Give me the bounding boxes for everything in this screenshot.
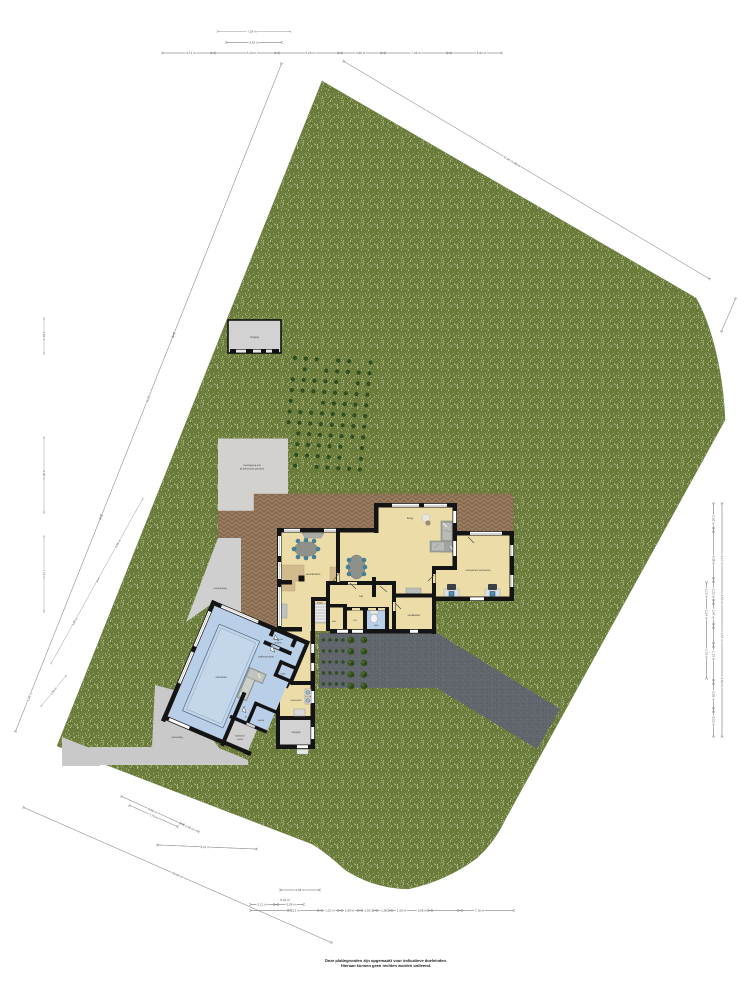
svg-text:berging: berging: [292, 731, 301, 734]
svg-text:kast: kast: [332, 620, 336, 623]
svg-text:hal: hal: [354, 619, 357, 622]
svg-text:4,71 m: 4,71 m: [186, 51, 196, 55]
svg-text:1,12 m: 1,12 m: [704, 589, 708, 599]
svg-text:beauty en: beauty en: [273, 638, 283, 641]
svg-text:badkamer: badkamer: [235, 735, 245, 738]
svg-text:5,28 m: 5,28 m: [305, 51, 315, 55]
svg-text:hal: hal: [298, 657, 302, 660]
svg-text:4,50 m: 4,50 m: [720, 595, 724, 605]
svg-text:3,62 m: 3,62 m: [249, 41, 259, 45]
svg-text:woonkeuken: woonkeuken: [306, 573, 321, 576]
svg-text:5,82 m: 5,82 m: [477, 51, 487, 55]
svg-text:3,66 m: 3,66 m: [418, 909, 428, 913]
svg-text:kelder: kelder: [317, 602, 323, 605]
svg-text:2,62 m: 2,62 m: [711, 515, 715, 525]
svg-text:1,68 m: 1,68 m: [345, 909, 355, 913]
svg-text:zwembad: zwembad: [215, 676, 227, 679]
svg-text:4,62 m: 4,62 m: [720, 677, 724, 687]
svg-text:toilet: toilet: [281, 673, 286, 676]
svg-text:verhuurbare werkruimte: verhuurbare werkruimte: [465, 569, 491, 572]
svg-text:7,16 m: 7,16 m: [475, 909, 485, 913]
svg-text:2,07 m: 2,07 m: [720, 555, 724, 565]
svg-text:1,97 m: 1,97 m: [711, 609, 715, 619]
svg-text:3,02 m: 3,02 m: [42, 331, 46, 341]
svg-text:7,18 m: 7,18 m: [247, 30, 257, 34]
svg-text:wellnessruimte: wellnessruimte: [258, 656, 274, 659]
svg-text:8,00 m: 8,00 m: [42, 470, 46, 480]
svg-text:2,14 m: 2,14 m: [704, 610, 708, 620]
svg-text:5,24 m: 5,24 m: [247, 51, 257, 55]
svg-text:ruimte: ruimte: [237, 738, 244, 741]
svg-text:hal: hal: [359, 595, 363, 598]
svg-text:wasruimte: wasruimte: [291, 699, 303, 702]
svg-text:4,38 m: 4,38 m: [711, 555, 715, 565]
svg-text:werkkamer: werkkamer: [408, 614, 421, 617]
svg-text:bij behorende grindtuin: bij behorende grindtuin: [240, 468, 265, 471]
svg-text:3,21 m: 3,21 m: [290, 909, 300, 913]
svg-text:living: living: [407, 517, 413, 520]
svg-text:8,11 m: 8,11 m: [200, 845, 210, 849]
svg-text:2,21 m: 2,21 m: [257, 903, 267, 907]
svg-text:toilet: toilet: [374, 624, 379, 627]
svg-text:3,28 m: 3,28 m: [286, 903, 296, 907]
svg-text:4,80 m: 4,80 m: [356, 51, 366, 55]
svg-text:2,22 m: 2,22 m: [711, 589, 715, 599]
svg-text:douche: douche: [274, 641, 282, 644]
svg-text:1,55 m: 1,55 m: [397, 909, 407, 913]
svg-text:sauna: sauna: [258, 719, 265, 722]
svg-text:1,73 m: 1,73 m: [711, 651, 715, 661]
svg-text:1,73 m: 1,73 m: [704, 649, 708, 659]
svg-text:Hieraan kunnen geen rechten wo: Hieraan kunnen geen rechten worden ontle…: [341, 963, 431, 968]
svg-text:berging: berging: [250, 336, 259, 339]
svg-text:3,02 m: 3,02 m: [711, 716, 715, 726]
svg-text:7,28 m: 7,28 m: [411, 51, 421, 55]
svg-text:verharding: verharding: [171, 736, 183, 739]
svg-text:overkapping: overkapping: [213, 587, 227, 590]
svg-text:1,32 m: 1,32 m: [325, 909, 335, 913]
svg-text:4,68 m: 4,68 m: [295, 888, 305, 892]
svg-text:8,01 m: 8,01 m: [280, 898, 290, 902]
svg-text:3,26 m: 3,26 m: [711, 691, 715, 701]
svg-text:7,70 m: 7,70 m: [42, 569, 46, 579]
svg-text:2,67 m: 2,67 m: [720, 632, 724, 642]
